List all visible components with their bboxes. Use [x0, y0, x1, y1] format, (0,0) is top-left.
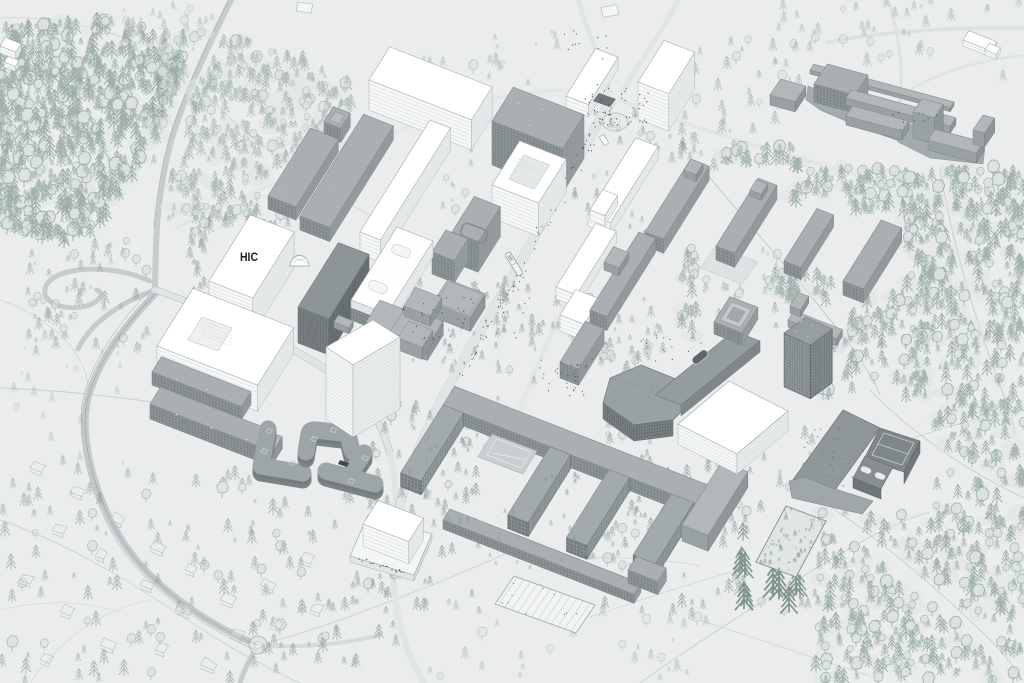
svg-text:HIC: HIC	[240, 250, 258, 264]
